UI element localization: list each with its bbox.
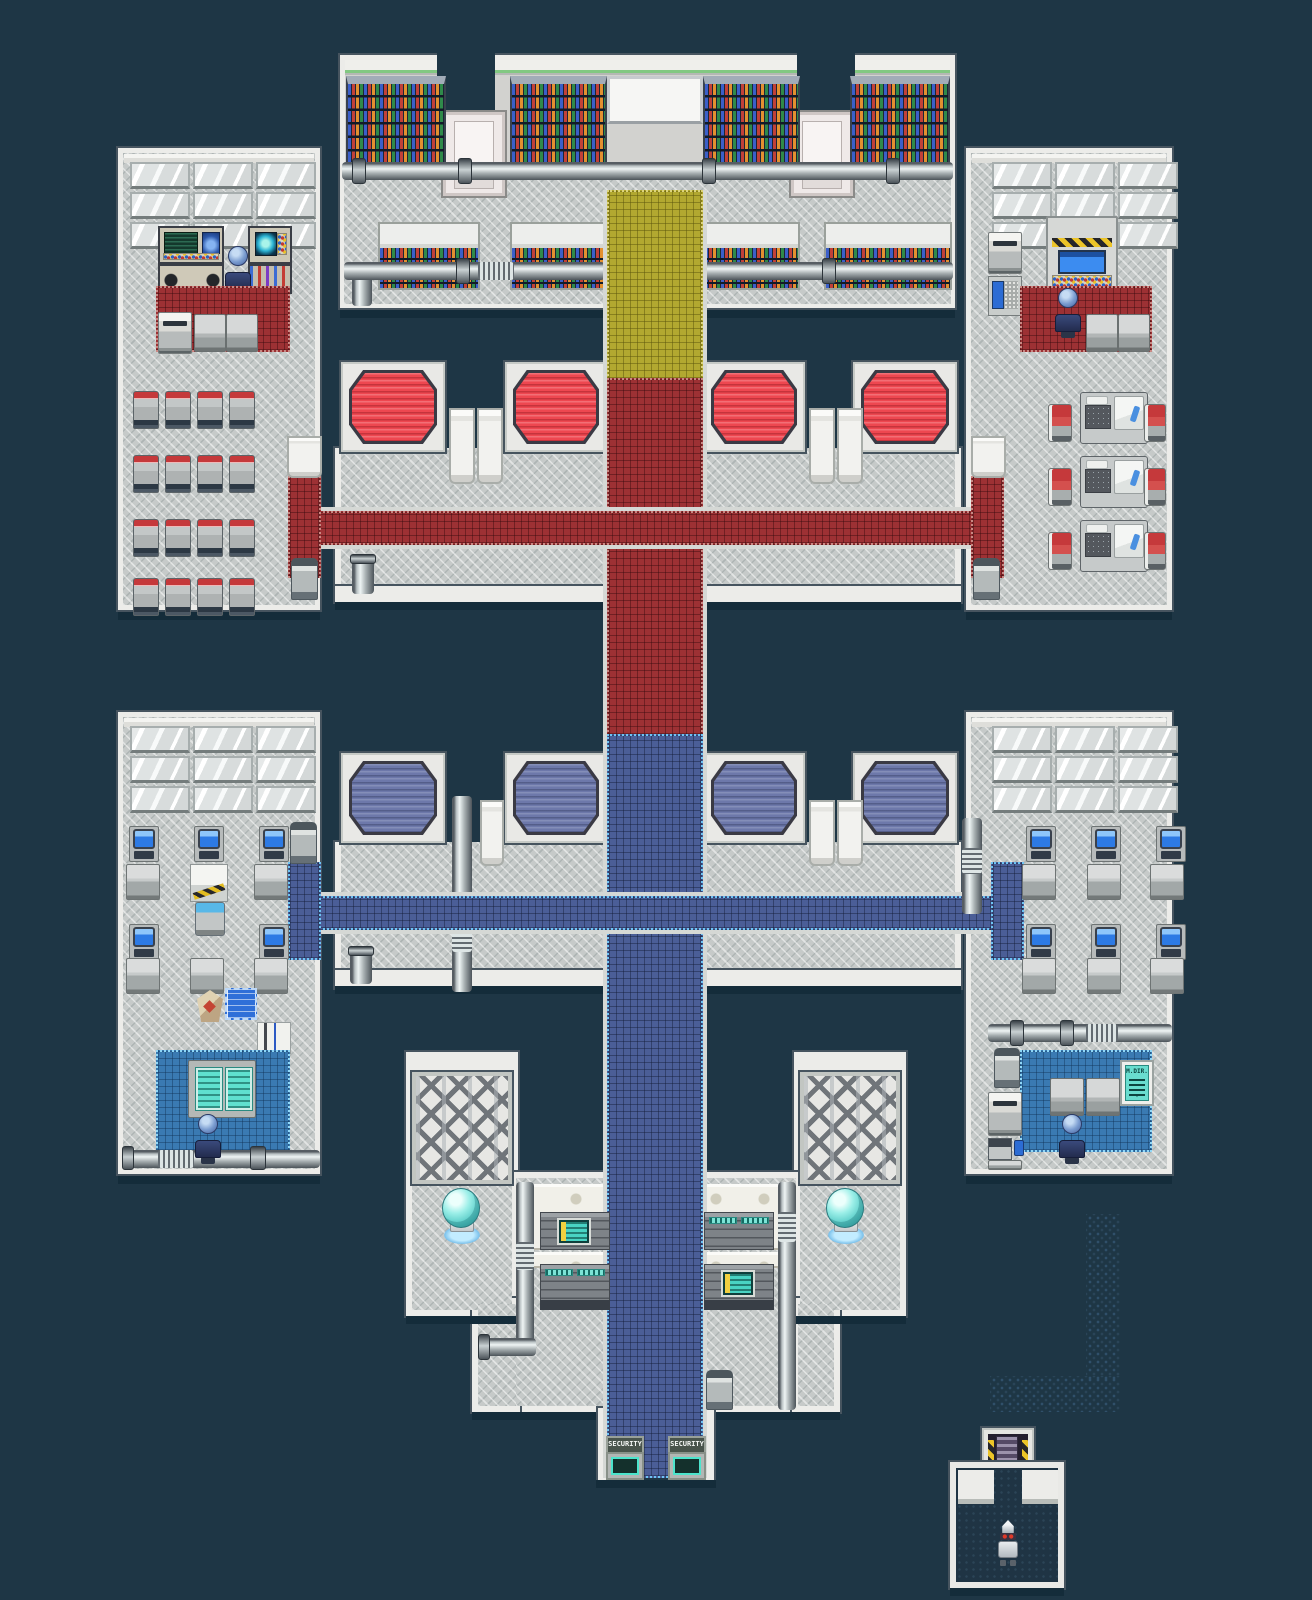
hall-door-panel[interactable]: [480, 800, 504, 866]
red-corridor-vertical: [607, 378, 703, 736]
window-pane: [130, 726, 190, 753]
window-pane: [256, 162, 316, 189]
blue-table-unit: [505, 753, 607, 843]
red-table-top: [352, 373, 434, 441]
waiting-seat: [229, 578, 255, 616]
bookshelf-tall[interactable]: [703, 76, 800, 164]
workbench[interactable]: [190, 864, 228, 902]
computer-workstation[interactable]: [194, 826, 224, 862]
desk: [1022, 958, 1056, 994]
rack-indicator: [741, 1217, 769, 1224]
waiting-seat: [197, 455, 223, 493]
rack-indicator: [709, 1217, 737, 1224]
desk: [254, 864, 288, 900]
stool: [201, 1157, 215, 1164]
desk: [1150, 958, 1184, 994]
pipe-coupling: [348, 946, 374, 956]
trash-bin[interactable]: [994, 1048, 1020, 1088]
monitor-base: [1161, 949, 1181, 957]
trash-bin[interactable]: [706, 1370, 733, 1410]
shadow: [472, 1412, 614, 1420]
console-buttons: [163, 253, 219, 260]
facility-map: SECURITY SECURITY: [0, 0, 1312, 1600]
library-wall-band: [345, 60, 950, 70]
directory-screen: M.DIR.▼: [1125, 1065, 1149, 1101]
monitor-base: [1096, 949, 1116, 957]
room-inner-wall: [958, 1470, 994, 1504]
desk: [1022, 864, 1056, 900]
monitor-base: [264, 949, 284, 957]
pipe-coupling: [822, 258, 836, 284]
console-screen-globe: [255, 232, 277, 256]
server-rack[interactable]: [704, 1212, 774, 1250]
figure-body: [1055, 314, 1081, 332]
pipe-elbow: [352, 560, 374, 594]
pod-sheet: [1114, 460, 1144, 494]
red-table-unit: [703, 362, 805, 452]
security-door-right[interactable]: [668, 1452, 706, 1480]
glass-dome-device[interactable]: [826, 1188, 864, 1228]
computer-workstation[interactable]: [129, 826, 159, 862]
window-pane: [193, 756, 253, 783]
desk: [254, 958, 288, 994]
table: [1050, 1078, 1084, 1116]
computer-workstation[interactable]: [1091, 826, 1121, 862]
printer[interactable]: [988, 1138, 1012, 1160]
table-frame: [349, 370, 437, 444]
waiting-seat: [133, 455, 159, 493]
pipe-coupling: [122, 1146, 134, 1170]
window-pane: [1055, 786, 1115, 813]
copier-machine[interactable]: [158, 312, 192, 354]
window-pane: [1118, 222, 1178, 249]
pipe-horizontal-upper: [342, 162, 953, 180]
monitor-screen: [1030, 927, 1052, 947]
computer-workstation[interactable]: [1026, 826, 1056, 862]
blue-table-top: [516, 764, 596, 832]
window-pane: [992, 756, 1052, 783]
desk: [1087, 958, 1121, 994]
pipe-coupling: [250, 1146, 266, 1170]
robot-foot: [1010, 1560, 1016, 1566]
monitor-base: [1031, 949, 1051, 957]
robot[interactable]: [996, 1520, 1020, 1566]
table-frame: [513, 370, 599, 444]
window-pane: [1055, 756, 1115, 783]
paper-slot: [993, 241, 1017, 246]
table-frame: [861, 370, 949, 444]
blue-table-top: [864, 764, 946, 832]
pipe-elbow: [350, 952, 372, 984]
bookshelf-tall[interactable]: [850, 76, 950, 164]
monitor-screen: [1160, 927, 1182, 947]
seated-figure-lower-left[interactable]: [194, 1114, 224, 1164]
computer-workstation[interactable]: [1091, 924, 1121, 960]
window-pane: [256, 756, 316, 783]
pipe-horizontal-lower-left: [344, 262, 605, 280]
lattice-wall-right: [800, 1072, 900, 1184]
blue-table-unit: [853, 753, 957, 843]
waiting-seat: [133, 391, 159, 429]
library-door-right[interactable]: [791, 112, 853, 196]
window-pane: [1055, 726, 1115, 753]
red-chair: [1144, 468, 1166, 506]
waiting-seat: [229, 391, 255, 429]
red-table-unit: [505, 362, 607, 452]
shadow: [794, 1316, 906, 1324]
hidden-path-horizontal: [990, 1376, 1120, 1412]
monitor-base: [264, 851, 284, 859]
shadow: [406, 1316, 518, 1324]
table: [1086, 314, 1118, 352]
door-glow: [611, 1457, 639, 1475]
monitor-screen: [1030, 829, 1052, 849]
security-door-left[interactable]: [606, 1452, 644, 1480]
paper-slot: [163, 321, 187, 326]
blue-corridor-connector-left: [288, 862, 321, 960]
window-pane: [992, 192, 1052, 219]
blueprint[interactable]: [225, 988, 257, 1020]
trash-bin[interactable]: [290, 822, 317, 864]
blue-table-unit: [341, 753, 445, 843]
pipe-coupling: [702, 158, 716, 184]
lattice-wall-left: [412, 1072, 512, 1184]
directory-title: M.DIR.: [1126, 1068, 1148, 1075]
copier-machine[interactable]: [988, 1092, 1022, 1136]
pipe-coupling: [1010, 1020, 1024, 1046]
stool: [1061, 331, 1075, 338]
computer-workstation[interactable]: [1156, 826, 1186, 862]
desk: [126, 958, 160, 994]
red-chair: [1048, 404, 1072, 442]
hall-door-panel[interactable]: [837, 408, 863, 484]
pipe-corrugated: [1086, 1024, 1118, 1042]
pipe-elbow-horizontal: [484, 1338, 536, 1356]
console-screen-green: [164, 232, 198, 254]
pillow: [1086, 524, 1108, 533]
stool: [1065, 1157, 1079, 1164]
desk: [126, 864, 160, 900]
red-table-top: [516, 373, 596, 441]
window-pane: [992, 726, 1052, 753]
table-frame: [711, 761, 797, 835]
figure-head: [1058, 288, 1078, 308]
library-gray-stripe: [345, 73, 950, 75]
sleep-pod[interactable]: [1080, 520, 1148, 572]
window-pane: [193, 726, 253, 753]
table: [194, 314, 226, 352]
room-inner-wall: [1022, 1470, 1058, 1504]
window-pane: [130, 162, 190, 189]
window-pane: [1118, 726, 1178, 753]
shadow: [950, 1588, 1064, 1596]
window-pane: [130, 192, 190, 219]
terminal-screen: [992, 281, 1004, 309]
waiting-seat: [197, 578, 223, 616]
red-chair: [1144, 404, 1166, 442]
figure-head: [1062, 1114, 1082, 1134]
monitor-screen: [263, 927, 285, 947]
analysis-machine[interactable]: [1046, 216, 1118, 292]
figure-head: [198, 1114, 218, 1134]
red-table-unit: [341, 362, 445, 452]
pipe-corrugated: [158, 1150, 194, 1168]
monitor-screen: [1095, 829, 1117, 849]
window-pane: [130, 756, 190, 783]
table: [226, 314, 258, 352]
blue-corridor-connector-right: [991, 862, 1024, 960]
window-pane: [1118, 192, 1178, 219]
blue-device: [1014, 1140, 1024, 1156]
red-table-top: [714, 373, 794, 441]
pod-grill: [1085, 469, 1111, 493]
table: [1086, 1078, 1120, 1116]
window-pane: [130, 786, 190, 813]
waiting-seat: [197, 519, 223, 557]
pipe-coupling: [350, 554, 376, 564]
seated-figure-upper-right[interactable]: [1054, 288, 1082, 338]
waiting-seat: [165, 578, 191, 616]
red-table-unit: [853, 362, 957, 452]
desk: [190, 958, 224, 994]
waiting-seat: [165, 391, 191, 429]
glass-dome-device[interactable]: [442, 1188, 480, 1228]
pipe-corrugated: [516, 1242, 534, 1270]
waiting-seat: [165, 455, 191, 493]
waiting-seat: [133, 519, 159, 557]
pipe-vertical-hall: [452, 796, 472, 992]
computer-workstation[interactable]: [259, 924, 289, 960]
blue-table-top: [714, 764, 794, 832]
figure-body: [195, 1140, 221, 1158]
window-pane: [1055, 192, 1115, 219]
figure-body: [1059, 1140, 1085, 1158]
pillow: [1086, 396, 1108, 405]
desk: [1087, 864, 1121, 900]
figure-head: [228, 246, 248, 266]
computer-workstation[interactable]: [1026, 924, 1056, 960]
hazard-stripe: [1052, 238, 1112, 247]
pod-grill: [1085, 533, 1111, 557]
server-rack[interactable]: [540, 1264, 610, 1302]
pipe-coupling: [352, 158, 366, 184]
monitor-base: [1031, 851, 1051, 859]
locker-door[interactable]: [971, 436, 1006, 478]
bookshelf-tall[interactable]: [510, 76, 607, 164]
trash-bin[interactable]: [291, 558, 318, 600]
table-frame: [861, 761, 949, 835]
monitor-screen: [198, 829, 220, 849]
bookshelf-tall[interactable]: [346, 76, 446, 164]
machine-window: [226, 1068, 252, 1110]
red-table-top: [864, 373, 946, 441]
window-pane: [256, 786, 316, 813]
hall-door-panel[interactable]: [809, 800, 835, 866]
red-chair: [1048, 468, 1072, 506]
copier-machine[interactable]: [988, 232, 1022, 274]
console-screen-blue: [202, 232, 220, 254]
pod-grill: [1085, 405, 1111, 429]
table: [988, 1160, 1022, 1170]
security-sign-left: SECURITY: [606, 1436, 644, 1452]
pillow: [1086, 460, 1108, 469]
waiting-seat: [229, 455, 255, 493]
blue-corridor-horizontal: [288, 896, 1024, 930]
window-pane: [1055, 162, 1115, 189]
robot-foot: [1000, 1560, 1006, 1566]
monitor-screen: [263, 829, 285, 849]
down-arrow-icon: ▼: [1126, 1094, 1148, 1099]
machine-screen: [1058, 250, 1106, 274]
pipe-flange: [478, 1334, 490, 1360]
computer-workstation[interactable]: [129, 924, 159, 960]
robot-body: [998, 1541, 1018, 1558]
pipe-coupling: [1060, 1020, 1074, 1046]
blue-table-unit: [703, 753, 805, 843]
yellow-carpet-corridor: [607, 190, 703, 380]
table-frame: [513, 761, 599, 835]
map-mark: [203, 1000, 216, 1013]
table: [1118, 314, 1150, 352]
monitor-base: [1096, 851, 1116, 859]
server-rack[interactable]: [540, 1212, 610, 1250]
library-notch-right: [797, 50, 855, 116]
seated-figure-lower-right[interactable]: [1058, 1114, 1088, 1164]
hazard-arrow: [193, 883, 226, 900]
rack-base: [540, 1300, 610, 1310]
monitor-screen: [133, 927, 155, 947]
window-pane: [193, 162, 253, 189]
rack-indicator: [577, 1269, 605, 1276]
robot-face: [1000, 1533, 1016, 1540]
rack-terminal: [721, 1270, 755, 1297]
blue-corridor-vertical: [607, 734, 703, 1478]
pipe-corrugated: [962, 848, 982, 874]
red-chair: [1144, 532, 1166, 570]
monitor-screen: [1160, 829, 1182, 849]
pod-sheet: [1114, 524, 1144, 558]
terminal-keys: [1004, 281, 1018, 309]
door-glow: [673, 1457, 701, 1475]
monitor-screen: [133, 829, 155, 849]
waiting-seat: [165, 519, 191, 557]
waiting-seat: [229, 519, 255, 557]
terminal-machine[interactable]: [988, 276, 1022, 316]
monitor-base: [1161, 851, 1181, 859]
window-pane: [1118, 786, 1178, 813]
library-door-left[interactable]: [443, 112, 505, 196]
shadow: [698, 1412, 840, 1420]
locker-door[interactable]: [287, 436, 322, 478]
security-sign-right: SECURITY: [668, 1436, 706, 1452]
computer-workstation[interactable]: [259, 826, 289, 862]
waiting-seat: [197, 391, 223, 429]
directory-sign[interactable]: M.DIR.▼: [1120, 1060, 1154, 1106]
table-frame: [349, 761, 437, 835]
shadow: [596, 1480, 716, 1488]
monitor-base: [199, 851, 219, 859]
waiting-seat: [133, 578, 159, 616]
monitor-base: [134, 851, 154, 859]
control-console[interactable]: [158, 226, 224, 264]
red-chair: [1048, 532, 1072, 570]
window-pane: [1118, 162, 1178, 189]
hidden-path-vertical: [1086, 1214, 1120, 1380]
pipe-coupling: [886, 158, 900, 184]
window-pane: [1118, 756, 1178, 783]
globe-console[interactable]: [248, 226, 292, 264]
hall-door-panel[interactable]: [477, 408, 503, 484]
hall-door-panel[interactable]: [809, 408, 835, 484]
rack-terminal: [557, 1218, 591, 1245]
terminal-screen: [725, 1274, 751, 1293]
window-pane: [256, 726, 316, 753]
console-buttons: [277, 233, 287, 255]
pod-sheet: [1114, 396, 1144, 430]
rack-base: [704, 1300, 774, 1310]
window-pane: [256, 192, 316, 219]
pipe-coupling: [456, 258, 470, 284]
monitor-screen: [1095, 927, 1117, 947]
trash-bin[interactable]: [973, 558, 1000, 600]
blue-table-top: [352, 764, 434, 832]
window-pane: [992, 786, 1052, 813]
whiteboard: [607, 76, 703, 124]
sleep-pod[interactable]: [1080, 456, 1148, 508]
monitor-base: [134, 949, 154, 957]
pipe-corrugated: [778, 1212, 796, 1242]
terminal-screen: [561, 1222, 587, 1241]
window-pane: [193, 786, 253, 813]
hall-door-panel[interactable]: [449, 408, 475, 484]
table-frame: [711, 370, 797, 444]
rack-indicator: [545, 1269, 573, 1276]
red-corridor-horizontal: [288, 511, 1004, 545]
pipe-corrugated: [478, 262, 514, 280]
small-machine[interactable]: [195, 902, 225, 936]
machine-window: [196, 1068, 222, 1110]
window-pane: [193, 192, 253, 219]
window-pane: [992, 162, 1052, 189]
server-rack[interactable]: [704, 1264, 774, 1302]
desk: [1150, 864, 1184, 900]
pipe-coupling: [458, 158, 472, 184]
hall-door-panel[interactable]: [837, 800, 863, 866]
computer-workstation[interactable]: [1156, 924, 1186, 960]
sleep-pod[interactable]: [1080, 392, 1148, 444]
paper-slot: [993, 1101, 1017, 1106]
